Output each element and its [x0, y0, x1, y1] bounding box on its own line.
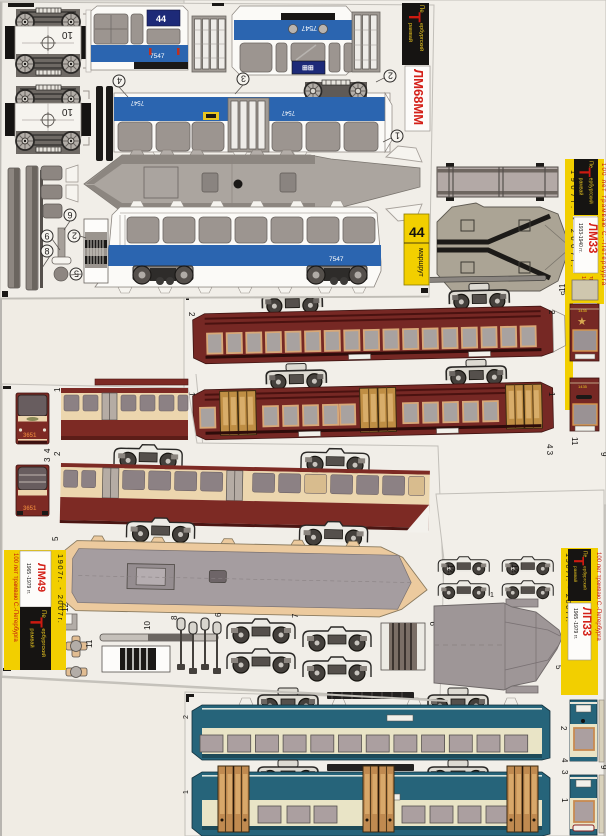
svg-text:11: 11 — [570, 437, 579, 446]
svg-text:2: 2 — [559, 726, 568, 731]
svg-text:2: 2 — [547, 310, 556, 315]
svg-text:12: 12 — [510, 564, 519, 573]
svg-text:2: 2 — [72, 231, 77, 241]
svg-text:1907г. - 2007г.: 1907г. - 2007г. — [56, 554, 65, 624]
svg-text:1435: 1435 — [578, 308, 588, 313]
svg-text:1: 1 — [547, 392, 556, 397]
svg-text:4 3: 4 3 — [545, 444, 554, 456]
svg-text:ЛП33: ЛП33 — [580, 607, 592, 636]
svg-text:маршрут: маршрут — [417, 248, 424, 278]
svg-text:★: ★ — [577, 316, 587, 328]
svg-text:1: 1 — [490, 592, 494, 599]
svg-text:9: 9 — [599, 765, 606, 770]
svg-text:6: 6 — [45, 232, 50, 242]
svg-text:3651: 3651 — [23, 506, 37, 512]
svg-text:1: 1 — [560, 798, 569, 803]
svg-text:5: 5 — [74, 269, 79, 279]
svg-text:4: 4 — [117, 76, 122, 86]
svg-text:3: 3 — [560, 770, 569, 775]
svg-text:44: 44 — [156, 14, 166, 24]
svg-text:12: 12 — [61, 603, 70, 612]
svg-text:1965 -1979 гг.: 1965 -1979 гг. — [25, 563, 31, 594]
svg-text:5: 5 — [51, 536, 60, 541]
svg-text:ЛМ68ММ: ЛМ68ММ — [411, 69, 426, 125]
svg-text:7547: 7547 — [281, 109, 295, 115]
svg-text:6: 6 — [214, 612, 223, 617]
svg-text:1: 1 — [53, 387, 62, 392]
svg-text:ЛМ33: ЛМ33 — [586, 223, 598, 253]
svg-text:100 лет трамваю С.-Петербурга: 100 лет трамваю С.-Петербурга — [600, 163, 606, 286]
svg-text:2: 2 — [53, 451, 62, 456]
svg-text:7: 7 — [291, 613, 300, 618]
svg-text:1933-1940 гг.: 1933-1940 гг. — [577, 223, 583, 253]
svg-text:ЛМ49: ЛМ49 — [35, 563, 47, 592]
svg-text:3: 3 — [43, 457, 52, 462]
svg-text:2: 2 — [187, 312, 196, 317]
svg-text:44: 44 — [409, 224, 425, 240]
svg-text:11: 11 — [85, 639, 94, 648]
svg-text:7547: 7547 — [150, 53, 165, 60]
svg-text:⊞⊞: ⊞⊞ — [302, 65, 314, 72]
svg-text:8: 8 — [45, 247, 50, 257]
svg-text:3: 3 — [241, 74, 246, 84]
svg-text:9: 9 — [599, 452, 606, 457]
svg-text:2: 2 — [183, 715, 190, 719]
svg-text:7547: 7547 — [329, 256, 344, 263]
svg-text:8: 8 — [170, 615, 179, 620]
svg-text:4: 4 — [560, 758, 569, 763]
svg-text:3651: 3651 — [23, 433, 37, 439]
svg-text:9: 9 — [68, 211, 73, 221]
svg-text:2: 2 — [388, 71, 393, 81]
svg-text:100 лет трамваю С.-Петербурга: 100 лет трамваю С.-Петербурга — [595, 552, 601, 641]
svg-text:1: 1 — [183, 790, 190, 794]
svg-text:1435: 1435 — [578, 384, 588, 389]
svg-text:1: 1 — [395, 131, 400, 141]
svg-text:10: 10 — [143, 621, 152, 630]
svg-text:7547: 7547 — [130, 99, 144, 105]
svg-text:100 лет трамваю С.-Петербурга: 100 лет трамваю С.-Петербурга — [12, 553, 18, 642]
svg-text:11: 11 — [558, 283, 567, 292]
svg-text:12: 12 — [446, 564, 455, 573]
svg-text:1965 -1979 гг.: 1965 -1979 гг. — [572, 608, 578, 639]
svg-text:7547: 7547 — [301, 24, 317, 31]
svg-text:4: 4 — [43, 448, 52, 453]
